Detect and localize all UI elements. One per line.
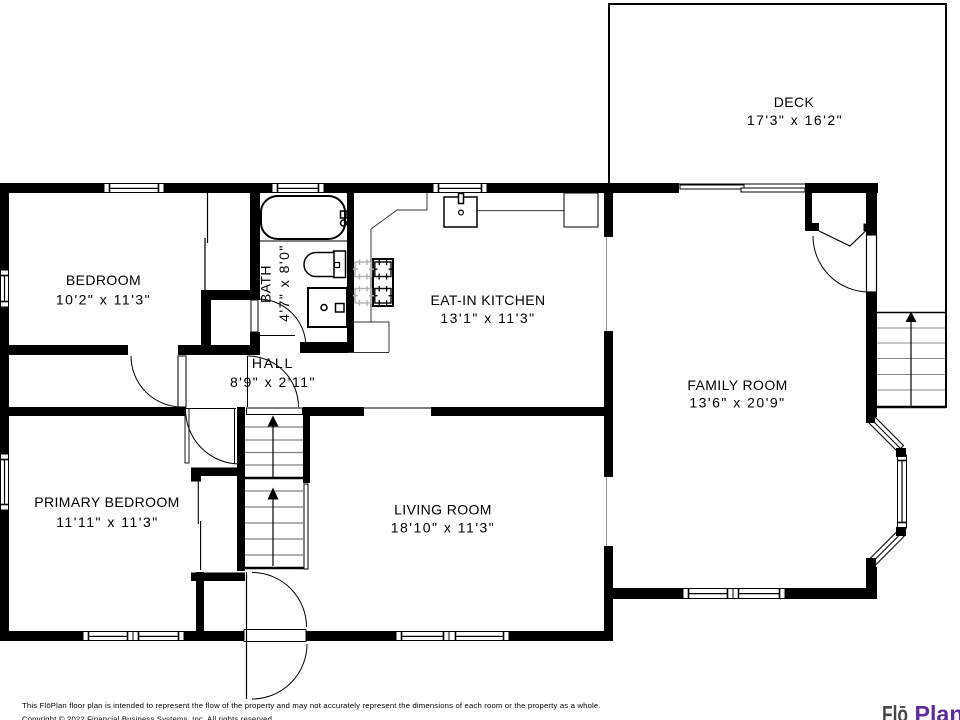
svg-text:10'2" x 11'3": 10'2" x 11'3": [56, 292, 151, 308]
svg-text:This FlōPlan floor plan is int: This FlōPlan floor plan is intended to r…: [22, 701, 601, 710]
svg-text:13'6" x 20'9": 13'6" x 20'9": [689, 395, 785, 411]
svg-text:8'9" x 2'11": 8'9" x 2'11": [230, 374, 316, 390]
svg-text:18'10" x 11'3": 18'10" x 11'3": [391, 520, 496, 536]
svg-text:17'3" x 16'2": 17'3" x 16'2": [747, 112, 843, 128]
svg-text:Flō: Flō: [882, 701, 908, 720]
svg-text:Plan: Plan: [915, 701, 960, 720]
svg-text:EAT-IN KITCHEN: EAT-IN KITCHEN: [430, 292, 545, 308]
svg-text:FAMILY ROOM: FAMILY ROOM: [687, 377, 787, 393]
svg-text:BEDROOM: BEDROOM: [66, 272, 141, 288]
svg-text:13'1" x 11'3": 13'1" x 11'3": [440, 310, 535, 326]
svg-text:LIVING ROOM: LIVING ROOM: [394, 502, 492, 518]
svg-text:Copyright © 2022 Financial Bus: Copyright © 2022 Financial Business Syst…: [22, 715, 274, 720]
svg-text:DECK: DECK: [774, 94, 815, 110]
svg-text:11'11" x 11'3": 11'11" x 11'3": [56, 514, 158, 530]
svg-text:PRIMARY BEDROOM: PRIMARY BEDROOM: [34, 494, 180, 510]
svg-text:4'7" x 8'0": 4'7" x 8'0": [276, 244, 292, 322]
